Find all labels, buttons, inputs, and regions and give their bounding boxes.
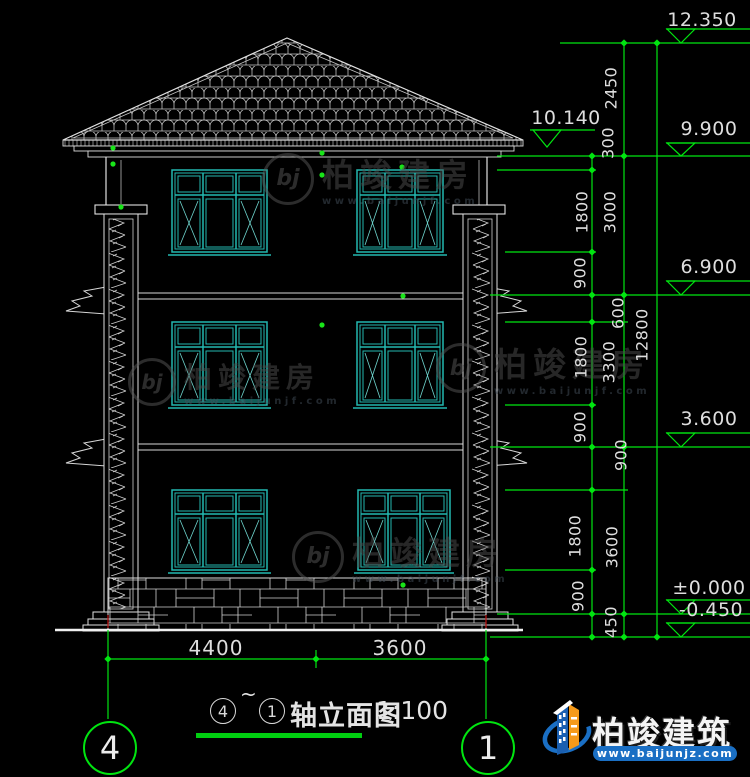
brand-url: www.baijunjz.com — [593, 746, 737, 761]
dim-label: 2450 — [602, 67, 621, 110]
title-underline — [196, 733, 362, 738]
elevation-label: 10.140 — [531, 107, 600, 129]
elevation-drawing-canvas: bj 柏竣建房 www.baijunjf.com bj 柏竣建房 www.bai… — [0, 0, 750, 777]
eave-fascia — [63, 140, 523, 157]
left-pilaster — [83, 160, 159, 631]
elevation-label: -0.450 — [679, 599, 743, 621]
hip-roof-tiles — [63, 38, 523, 140]
brand-logo-block: 柏竣建筑 www.baijunjz.com — [540, 695, 745, 770]
cad-linework — [0, 0, 750, 777]
grid-axis-bubble-4: 4 — [83, 721, 137, 775]
right-pilaster — [442, 160, 518, 631]
dim-label: 3600 — [603, 526, 622, 569]
elevation-label: 3.600 — [681, 408, 738, 430]
elevation-label: 9.900 — [681, 118, 738, 140]
dim-label: 600 — [609, 297, 628, 329]
elevation-label: ±0.000 — [672, 577, 745, 599]
windows — [168, 170, 454, 573]
dim-label: 900 — [612, 439, 631, 471]
drawing-scale: 1:100 — [376, 696, 448, 725]
elevation-label: 6.900 — [681, 256, 738, 278]
dim-label: 900 — [571, 411, 590, 443]
stone-masonry-base — [108, 578, 486, 630]
brand-building-icon — [540, 695, 594, 761]
elevation-label: 12.350 — [667, 9, 736, 31]
title-tilde: ~ — [240, 682, 257, 706]
grid-axis-bubble-1: 1 — [461, 721, 515, 775]
title-axis-end-bubble: 1 — [259, 698, 285, 724]
title-axis-start-bubble: 4 — [210, 698, 236, 724]
dim-label: 1800 — [572, 336, 591, 379]
dim-label: 4400 — [189, 636, 244, 660]
dim-label: 900 — [569, 580, 588, 612]
floor-bands — [106, 293, 487, 450]
dim-label: 450 — [602, 606, 621, 638]
dim-label: 3600 — [373, 636, 428, 660]
dim-label: 300 — [599, 127, 618, 159]
dim-label: 3300 — [600, 341, 619, 384]
dim-label: 12800 — [633, 308, 652, 361]
dim-label: 1800 — [573, 191, 592, 234]
dim-label: 3000 — [601, 191, 620, 234]
dim-label: 900 — [571, 257, 590, 289]
wall-edges — [106, 157, 487, 630]
dim-label: 1800 — [566, 515, 585, 558]
